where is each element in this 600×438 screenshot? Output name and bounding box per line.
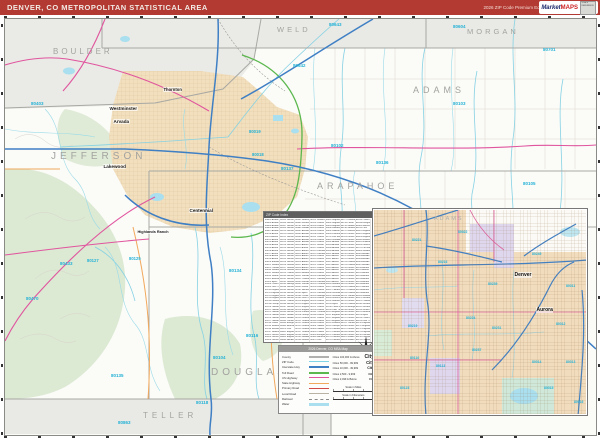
legend-swatch bbox=[309, 377, 329, 378]
zip-index-row: 80125 Littleton bbox=[326, 339, 340, 342]
legend-row: Water bbox=[282, 402, 329, 407]
neatline-ticks-left bbox=[1, 18, 3, 435]
zip-index-column: 80601 Brighton80602 Brighton80603 Bright… bbox=[326, 219, 341, 342]
neatline-ticks-right bbox=[598, 18, 600, 435]
legend-swatch bbox=[309, 356, 329, 358]
legend-city-size-row: Cities 2,499 & BelowCity bbox=[333, 378, 374, 384]
legend-swatch bbox=[309, 383, 329, 384]
zip-index-column: 80642 Hudson80643 Keenesburg80701 Fort M… bbox=[295, 219, 310, 342]
inset-street-grid bbox=[374, 210, 586, 414]
zip-index-column: 80127 Littleton80134 Parker80135 Sedalia… bbox=[341, 219, 356, 342]
zip-index-row: 80470 Pine bbox=[310, 339, 324, 342]
legend-swatch bbox=[309, 361, 329, 362]
map-product-screenshot: DENVER, CO METROPOLITAN STATISTICAL AREA… bbox=[0, 0, 600, 438]
legend-swatch bbox=[309, 372, 329, 374]
legend-line-items: CountyZIP CodeInterstate HwyToll RoadUS … bbox=[282, 354, 329, 407]
legend-body: CountyZIP CodeInterstate HwyToll RoadUS … bbox=[279, 352, 377, 409]
metro-inset-map: ADAMS 8022180022802168023980249800118021… bbox=[372, 208, 588, 416]
map-legend: 2026 Denver, CO MSA Map CountyZIP CodeIn… bbox=[278, 345, 378, 414]
zip-index-row: 80136 Strasburg bbox=[295, 339, 309, 342]
zip-index-column: 80433 Conifer80439 Evergreen80465 Morris… bbox=[356, 219, 371, 342]
legend-swatch bbox=[309, 399, 329, 400]
scale-miles-bar bbox=[333, 389, 374, 393]
zip-index-body: 80002 Arvada80003 Arvada80004 Arvada8000… bbox=[264, 218, 372, 343]
zip-index-table: ZIP Code Index 80002 Arvada80003 Arvada8… bbox=[263, 211, 373, 343]
brand-logo-text: MarketMAPS bbox=[541, 5, 578, 11]
legend-swatch bbox=[309, 403, 329, 406]
legend-city-sizes: Cities 100,000 & AboveCityCities 50,000 … bbox=[329, 354, 374, 407]
page-title: DENVER, CO METROPOLITAN STATISTICAL AREA bbox=[7, 3, 208, 12]
zip-index-row: 80204 Denver bbox=[265, 339, 279, 342]
zip-index-column: 80002 Arvada80003 Arvada80004 Arvada8000… bbox=[265, 219, 280, 342]
legend-swatch bbox=[309, 366, 329, 368]
zip-index-row: 80640 Henderson bbox=[280, 339, 294, 342]
zip-index-column: 80205 Denver80206 Denver80207 Denver8020… bbox=[280, 219, 295, 342]
legend-swatch bbox=[309, 388, 329, 389]
header-bar: DENVER, CO METROPOLITAN STATISTICAL AREA… bbox=[0, 0, 600, 15]
brand-logo: MarketMAPS SCALE REFERENCE bbox=[539, 1, 598, 14]
brand-logo-badge: SCALE REFERENCE bbox=[580, 1, 596, 15]
metro-inset-canvas: ADAMS 8022180022802168023980249800118021… bbox=[374, 210, 586, 414]
scale-km-bar bbox=[333, 397, 374, 401]
legend-swatch bbox=[309, 393, 329, 394]
zip-index-column: 80137 Watkins80202 Denver80203 Denver802… bbox=[310, 219, 325, 342]
